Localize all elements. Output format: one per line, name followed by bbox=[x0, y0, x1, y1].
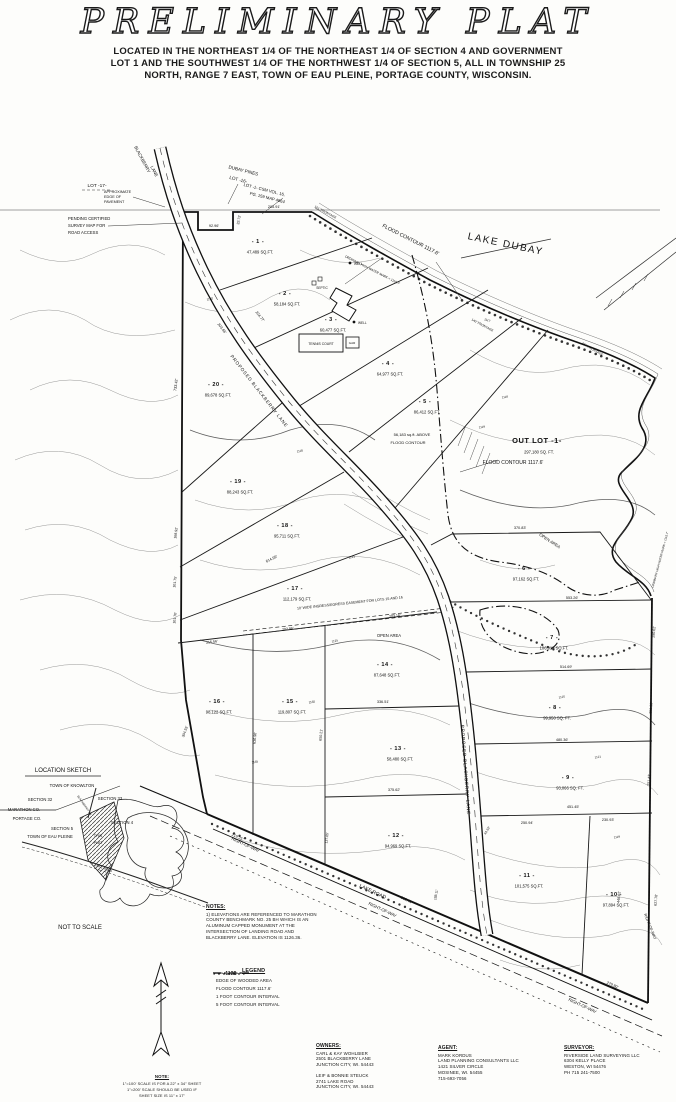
map-annotation: 205.91' bbox=[268, 205, 281, 209]
map-annotation: 202.96' bbox=[282, 626, 294, 631]
owner-line: JUNCTION CITY, WI. 54443 bbox=[316, 1062, 434, 1068]
map-annotation: 56,183 sq.ft. ABOVE bbox=[394, 432, 431, 437]
map-annotation: FLOOD CONTOUR 1117.6' bbox=[483, 460, 544, 466]
lot-number: - 16 - bbox=[209, 699, 225, 705]
map-annotation: LOT -17- bbox=[87, 183, 107, 189]
map-annotation: 168.92' bbox=[173, 527, 178, 539]
lot-area: 64,977 SQ.FT. bbox=[377, 372, 403, 377]
map-annotation: 1135 bbox=[251, 759, 258, 764]
surveyor-line: PH 715 241-7500 bbox=[564, 1070, 676, 1076]
subtitle-line: LOT 1 AND THE SOUTHWEST 1/4 OF THE NORTH… bbox=[48, 58, 628, 70]
ingress-egress-easement bbox=[243, 607, 455, 635]
map-annotation: 230.93' bbox=[602, 818, 615, 822]
agent-title: AGENT: bbox=[438, 1046, 566, 1052]
map-annotation: PAVEMENT bbox=[104, 200, 125, 204]
legend-item-1ft: 1121 1 FOOT CONTOUR INTERVAL bbox=[212, 993, 382, 1001]
map-annotation: LAKE DUBAY bbox=[467, 231, 545, 258]
owner-group: LEIF & BONNIE STEUCK 2741 LAKE ROAD JUNC… bbox=[316, 1073, 434, 1090]
sketch-label: PLAT bbox=[94, 841, 104, 845]
sketch-label: PORTAGE CO. bbox=[13, 816, 42, 821]
north-arrow bbox=[153, 963, 169, 1055]
lot-area: 58,184 SQ.FT. bbox=[274, 302, 300, 307]
notes-block: NOTES: 1) ELEVATIONS ARE REFERENCED TO M… bbox=[206, 905, 371, 940]
map-annotation: WELL bbox=[354, 262, 363, 266]
map-annotation: OPEN AREA bbox=[377, 633, 401, 638]
lot-area: 88,243 SQ.FT. bbox=[227, 490, 253, 495]
well-point bbox=[349, 262, 351, 264]
septic-tank bbox=[318, 277, 322, 281]
owner-group: CARL & KAY WOHLBIER 2501 BLACKBERRY LANE… bbox=[316, 1051, 434, 1068]
map-annotation: 375.62' bbox=[388, 788, 401, 792]
lot-area: 98,122 SQ.FT. bbox=[206, 710, 232, 715]
map-annotation: APPROXIMATE bbox=[104, 190, 132, 194]
lot-number: - 3 - bbox=[325, 317, 337, 323]
map-annotation: 1117 bbox=[484, 317, 491, 323]
map-annotation: FLOOD CONTOUR bbox=[390, 440, 425, 445]
lot-number: - 15 - bbox=[282, 699, 298, 705]
map-annotation: 553.26' bbox=[566, 596, 579, 600]
lot-area: 97,162 SQ.FT. bbox=[513, 577, 539, 582]
legend-title: LEGEND bbox=[242, 969, 382, 975]
map-annotation: 10' WIDE INGRESS/EGRESS EASEMENT FOR LOT… bbox=[297, 595, 403, 610]
sketch-label: SECTION 5 bbox=[51, 826, 74, 831]
legend-item-wooded: EDGE OF WOODED AREA bbox=[212, 977, 382, 985]
map-annotation: 650.21' bbox=[319, 729, 324, 741]
lot-number: - 5 - bbox=[419, 399, 431, 405]
map-annotation: EDGE OF bbox=[104, 195, 122, 199]
lot-area: 58,480 SQ.FT. bbox=[387, 757, 413, 762]
map-annotation: 313.41' bbox=[400, 896, 413, 905]
map-annotation: 1121 bbox=[594, 755, 601, 760]
map-annotation: 101.75' bbox=[172, 576, 177, 588]
legend-label: 5 FOOT CONTOUR INTERVAL bbox=[216, 1002, 280, 1008]
sketch-label: TOWN OF KNOWLTON bbox=[50, 783, 95, 788]
lot-number: - 9 - bbox=[562, 775, 574, 781]
lot-number: - 11 - bbox=[519, 873, 535, 879]
agent-line: 715-693-7056 bbox=[438, 1076, 566, 1082]
lot-number: - 4 - bbox=[382, 361, 394, 367]
sketch-label: NOT TO SCALE bbox=[58, 925, 102, 931]
subtitle-line: LOCATED IN THE NORTHEAST 1/4 OF THE NORT… bbox=[48, 46, 628, 58]
map-annotation: 101.70' bbox=[172, 612, 177, 624]
map-annotation: 32.72' bbox=[236, 214, 242, 225]
map-annotation: 627.78' bbox=[654, 894, 659, 906]
map-annotation: 137.65' bbox=[325, 832, 330, 844]
plat-boundary-east bbox=[648, 598, 652, 1003]
notes-line: BLACKBERRY LANE. ELEVATION IS 1126.36. bbox=[206, 935, 371, 941]
lot-area: 297,180 SQ. FT. bbox=[524, 450, 554, 455]
map-annotation: 451.45' bbox=[567, 805, 580, 809]
lot-area: 47,489 SQ.FT. bbox=[247, 250, 273, 255]
lot-number: - 19 - bbox=[230, 479, 246, 485]
legend-item-5ft: 1125 5 FOOT CONTOUR INTERVAL bbox=[212, 1001, 382, 1009]
scale-note-line: SHEET SIZE IS 11" x 17" bbox=[88, 1093, 236, 1099]
lot-number: OUT LOT -1- bbox=[512, 436, 562, 445]
map-annotation: 259.98' bbox=[649, 702, 654, 714]
title-block: PRELIMINARY PLAT LOCATED IN THE NORTHEAS… bbox=[0, 0, 676, 82]
lot-number: - 20 - bbox=[208, 382, 224, 388]
sketch-label: LOCATION SKETCH bbox=[35, 768, 91, 774]
scale-note-block: NOTE: 1"=100' SCALE IS FOR A 22" x 34" S… bbox=[88, 1074, 236, 1099]
lot-area: 93,066 SQ. FT. bbox=[556, 786, 584, 791]
map-annotation: RIGHT-OF-WAY bbox=[643, 913, 657, 941]
lot-area: 119,807 SQ.FT. bbox=[278, 710, 306, 715]
plat-boundary-west bbox=[181, 212, 207, 814]
lot-area: 106,913 SQ.FT. bbox=[540, 646, 569, 651]
sketch-label: THIS bbox=[94, 834, 103, 838]
sketch-label: TOWN OF EAU PLEINE bbox=[27, 834, 73, 839]
lot-number: - 17 - bbox=[287, 586, 303, 592]
map-annotation: 250.94' bbox=[521, 821, 534, 825]
lot-area: 89,678 SQ.FT. bbox=[205, 393, 231, 398]
map-annotation: 336.51' bbox=[377, 700, 390, 704]
lot-number: - 1 - bbox=[252, 239, 264, 245]
surveyor-title: SURVEYOR: bbox=[564, 1046, 676, 1052]
lot-area: 60,477 SQ.FT. bbox=[320, 328, 346, 333]
scale-note-title: NOTE: bbox=[88, 1074, 236, 1080]
lot-number: - 18 - bbox=[277, 523, 293, 529]
map-annotation: 1119 bbox=[613, 835, 620, 840]
lot-number: - 13 - bbox=[390, 746, 406, 752]
map-annotation: 1121 bbox=[348, 554, 356, 560]
corner-survey-lines bbox=[596, 238, 676, 310]
sketch-label: SECTION 32 bbox=[28, 797, 53, 802]
map-annotation: 1118 bbox=[501, 395, 508, 400]
map-annotation: 188.11' bbox=[433, 889, 439, 901]
sketch-label: SECTION 33 bbox=[98, 796, 123, 801]
lot-number: - 2 - bbox=[279, 291, 291, 297]
map-annotation: 44.62' bbox=[483, 825, 491, 835]
agent-block: AGENT: MARK KORDUS LAND PLANNING CONSULT… bbox=[438, 1046, 566, 1081]
map-annotation: 1119 bbox=[478, 425, 485, 430]
notes-title: NOTES: bbox=[206, 905, 371, 911]
map-annotation: 203.16' bbox=[389, 613, 401, 618]
septic-tank bbox=[312, 281, 316, 285]
map-annotation: 733.42' bbox=[173, 378, 179, 391]
map-annotation: 92.96' bbox=[209, 224, 220, 228]
legend-label: 1 FOOT CONTOUR INTERVAL bbox=[216, 994, 280, 1000]
surveyor-block: SURVEYOR: RIVERSIDE LAND SURVEYING LLC 6… bbox=[564, 1046, 676, 1076]
map-annotation: ORDINARY HIGH WATER MARK = 1115.7' bbox=[651, 531, 670, 588]
map-annotation: WELL bbox=[358, 321, 367, 325]
map-annotation: OPEN AREA bbox=[538, 532, 561, 549]
map-annotation: 370.83' bbox=[514, 526, 527, 530]
contour-symbol-label: 1125 bbox=[225, 971, 236, 977]
legend-label: EDGE OF WOODED AREA bbox=[216, 978, 272, 984]
lot-number: - 7 - bbox=[546, 635, 558, 641]
page-title: PRELIMINARY PLAT bbox=[0, 2, 676, 42]
lot-area: 112,179 SQ.FT. bbox=[283, 597, 311, 602]
map-annotation: 636.96' bbox=[253, 732, 258, 744]
map-annotation: 448.62' bbox=[617, 891, 622, 903]
map-annotation: TENNIS COURT bbox=[308, 342, 333, 346]
wooded-edges bbox=[212, 595, 645, 1010]
map-annotation: 290.62' bbox=[652, 626, 657, 638]
five-foot-contour-symbol: 1125 bbox=[212, 969, 250, 977]
plat-boundary bbox=[181, 212, 652, 1003]
map-annotation: 614.99' bbox=[265, 554, 278, 563]
plat-sheet: - 1 -47,489 SQ.FT.- 2 -58,184 SQ.FT.- 3 … bbox=[0, 0, 676, 1102]
map-annotation: 304.55' bbox=[181, 725, 189, 738]
site-features bbox=[299, 262, 359, 352]
legend-block: LEGEND EDGE OF WOODED AREA FLOOD CONTOUR… bbox=[212, 969, 382, 1009]
legend-label: FLOOD CONTOUR 1117.6' bbox=[216, 986, 271, 992]
plat-location-description: LOCATED IN THE NORTHEAST 1/4 OF THE NORT… bbox=[48, 46, 628, 82]
map-annotation: 1125 bbox=[558, 695, 565, 700]
lot-number: - 12 - bbox=[388, 833, 404, 839]
map-annotation: BLACKBERRY bbox=[133, 145, 151, 173]
slope-hatch bbox=[458, 425, 490, 474]
legend-item-flood: FLOOD CONTOUR 1117.6' bbox=[212, 985, 382, 993]
map-annotation: RIGHT-OF-WAY bbox=[568, 997, 598, 1014]
map-annotation: PENDING CERTIFIED bbox=[68, 216, 110, 221]
well-point bbox=[353, 321, 355, 323]
owners-block: OWNERS: CARL & KAY WOHLBIER 2501 BLACKBE… bbox=[316, 1044, 434, 1095]
map-annotation: 480.36' bbox=[556, 738, 569, 742]
map-annotation: 1130 bbox=[308, 699, 315, 704]
map-annotation: 224.77' bbox=[254, 310, 265, 322]
lot-area: 87,648 SQ.FT. bbox=[374, 673, 400, 678]
map-annotation: 514.69' bbox=[560, 665, 573, 669]
plat-boundary-north bbox=[183, 212, 312, 230]
map-annotation: SURVEY MAP FOR bbox=[68, 223, 105, 228]
map-annotation: 1125 bbox=[331, 638, 338, 643]
lot-number: - 8 - bbox=[549, 705, 561, 711]
lot-area: 95,711 SQ.FT. bbox=[274, 534, 300, 539]
map-annotation: 1118 bbox=[296, 448, 303, 453]
map-annotation: ROAD ACCESS bbox=[68, 230, 98, 235]
lot-area: 99,950 SQ. FT. bbox=[543, 716, 571, 721]
map-annotation: SEPTIC bbox=[316, 286, 328, 290]
lot-area: 94,969 SQ.FT. bbox=[385, 844, 411, 849]
map-annotation: GAR bbox=[349, 341, 356, 345]
lot-number: - 6 - bbox=[518, 566, 530, 572]
sketch-label: SECTION 4 bbox=[111, 820, 134, 825]
sketch-label: MARATHON CO. bbox=[8, 807, 40, 812]
lot-number: - 14 - bbox=[377, 662, 393, 668]
lot-area: 86,412 SQ.FT. bbox=[414, 410, 440, 415]
owner-line: JUNCTION CITY, WI. 54443 bbox=[316, 1084, 434, 1090]
lot-area: 101,575 SQ.FT. bbox=[515, 884, 544, 889]
subtitle-line: NORTH, RANGE 7 EAST, TOWN OF EAU PLEINE,… bbox=[48, 70, 628, 82]
owners-title: OWNERS: bbox=[316, 1044, 434, 1050]
